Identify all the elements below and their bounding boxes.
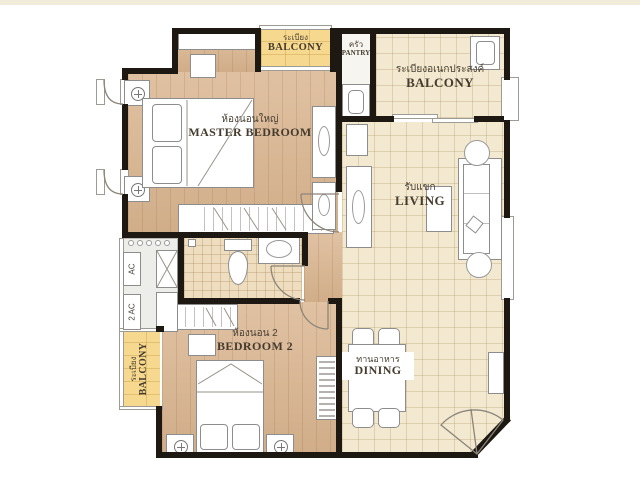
- drying-hook: [164, 240, 170, 246]
- balcony-side-railing-left: [119, 330, 124, 410]
- room-label-dining-english: DINING: [342, 364, 414, 378]
- room-label-balcony-front: ระเบียง BALCONY: [259, 33, 332, 54]
- room-label-balcony-side-thai: ระเบียง: [129, 331, 138, 407]
- drying-hook: [155, 240, 161, 246]
- wall: [156, 406, 162, 458]
- window-leaf-1: [96, 79, 105, 105]
- pillow: [200, 424, 228, 450]
- ac-unit-1-label: AC: [128, 263, 137, 274]
- right-wall-window: [501, 216, 514, 300]
- room-label-master-bedroom-thai: ห้องนอนใหญ่: [178, 114, 322, 126]
- wall: [336, 28, 510, 34]
- dresser-decor: [318, 194, 330, 216]
- room-label-balcony-service-english: BALCONY: [378, 76, 502, 91]
- dresser-2-drawers: [319, 359, 335, 417]
- room-label-balcony-service: ระเบียงอเนกประสงค์ BALCONY: [378, 64, 502, 90]
- room-label-balcony-front-thai: ระเบียง: [259, 33, 332, 42]
- tv-cabinet-decor: [352, 190, 365, 224]
- stool: [190, 54, 216, 78]
- room-label-dining: ทานอาหาร DINING: [342, 352, 414, 380]
- room-label-bedroom-2-thai: ห้องนอน 2: [183, 328, 327, 340]
- window-leaf-2: [96, 169, 105, 195]
- wall: [474, 116, 504, 122]
- wall: [504, 298, 510, 422]
- exterior-unit-box: [501, 77, 519, 121]
- room-label-living-english: LIVING: [378, 194, 462, 209]
- room-label-pantry-english: PANTRY: [341, 49, 371, 57]
- wall: [178, 298, 300, 304]
- sliding-door-panel-right: [432, 118, 478, 123]
- balcony-front-window-sill: [259, 66, 332, 71]
- floor-drain: [188, 239, 196, 247]
- ac-unit-2-label: 2 AC: [128, 303, 137, 320]
- dining-chair: [378, 408, 400, 428]
- side-table: [464, 140, 490, 166]
- room-label-balcony-side-english: BALCONY: [138, 331, 150, 407]
- tall-cabinet: [346, 124, 368, 156]
- wall: [504, 28, 510, 80]
- wall: [156, 452, 478, 458]
- wall: [178, 232, 184, 304]
- room-label-balcony-service-thai: ระเบียงอเนกประสงค์: [378, 64, 502, 76]
- pillow: [232, 424, 260, 450]
- wall: [156, 326, 164, 332]
- floor-plan: AC 2 AC ห้องนอนใหญ่ MASTER BEDROOM ระเบี…: [0, 0, 640, 480]
- washing-machine-door: [476, 41, 495, 65]
- side-table: [466, 252, 492, 278]
- balcony-front-railing: [259, 25, 332, 30]
- room-label-balcony-side: ระเบียง BALCONY: [129, 331, 153, 407]
- room-label-pantry-thai: ครัว: [341, 40, 371, 49]
- wall: [342, 116, 394, 122]
- room-label-master-bedroom-english: MASTER BEDROOM: [178, 126, 322, 140]
- room-label-balcony-front-english: BALCONY: [259, 42, 332, 54]
- drying-hook: [137, 240, 143, 246]
- wall: [172, 28, 261, 34]
- floor-corridor: [304, 232, 346, 304]
- drying-hook: [146, 240, 152, 246]
- dining-chair: [352, 408, 374, 428]
- room-label-living-thai: รับแขก: [378, 182, 462, 194]
- room-label-bedroom-2-english: BEDROOM 2: [183, 340, 327, 354]
- wall: [122, 68, 178, 74]
- room-label-master-bedroom: ห้องนอนใหญ่ MASTER BEDROOM: [178, 114, 322, 139]
- drying-hook: [128, 240, 134, 246]
- wall: [302, 232, 308, 266]
- pantry-sink-bowl: [348, 90, 364, 114]
- ac-unit-2: 2 AC: [123, 294, 141, 330]
- scan-edge-strip: [0, 0, 640, 5]
- basin-bowl: [266, 240, 292, 258]
- wall: [122, 68, 128, 80]
- shoe-cabinet: [488, 352, 504, 394]
- sofa-seat: [463, 164, 490, 254]
- wall: [122, 232, 308, 238]
- toilet-tank: [224, 239, 252, 251]
- ac-unit-1: AC: [123, 252, 141, 286]
- room-label-bedroom-2: ห้องนอน 2 BEDROOM 2: [183, 328, 327, 353]
- pillow: [152, 146, 182, 184]
- room-label-living: รับแขก LIVING: [378, 182, 462, 208]
- wardrobe-2-hanging-rail: [176, 307, 234, 327]
- condenser-unit: [156, 250, 178, 288]
- wall: [504, 120, 510, 218]
- room-label-pantry: ครัว PANTRY: [341, 40, 371, 57]
- wall: [122, 104, 128, 170]
